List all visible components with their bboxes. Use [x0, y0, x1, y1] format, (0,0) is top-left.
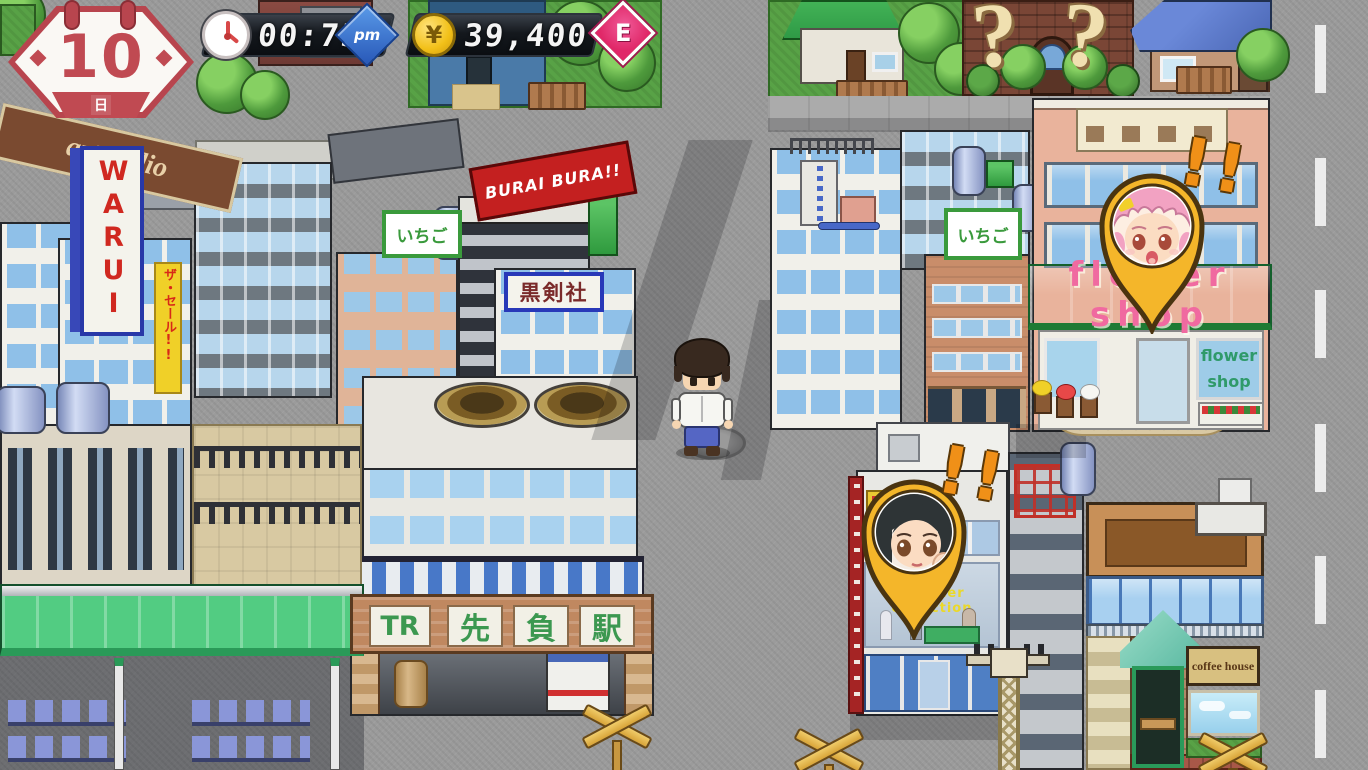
money-display: 39,400	[460, 18, 590, 54]
flower-bloom	[1032, 380, 1052, 396]
tower-bolt	[974, 644, 980, 654]
bench-row	[192, 700, 310, 726]
station-sign-kanji: 駅	[592, 604, 622, 648]
tower-bolt	[1038, 644, 1044, 654]
flower-window-text1: flower	[1199, 343, 1259, 369]
station-sign-tr: TR	[380, 611, 419, 642]
station-plaza	[192, 424, 362, 592]
station-sign-panel: 先	[447, 605, 503, 647]
station-pillar	[352, 654, 380, 714]
flower-bloom	[1080, 384, 1100, 400]
crossing-gate-tower	[966, 642, 1052, 770]
station-sign-kanji: 先	[460, 604, 490, 648]
canopy-post	[330, 658, 340, 770]
water-tank	[0, 386, 46, 434]
kiosk-top-stripe	[548, 654, 608, 662]
platform-canopy	[0, 584, 364, 656]
coffee-window-band	[1086, 576, 1264, 626]
warui-sign-text: WARUI	[98, 156, 129, 328]
player-shirt-button-line	[701, 396, 703, 422]
roof-box-pink	[840, 196, 876, 224]
sale-banner: ザ・セール!!	[154, 262, 182, 394]
lane-dash	[1315, 556, 1326, 624]
lane-dash	[1315, 158, 1326, 226]
ichigo-sign-left: いちご	[382, 210, 462, 258]
station-sign-panel: 駅	[579, 605, 635, 647]
player-arm	[671, 398, 681, 422]
calendar-day: 10	[8, 22, 194, 92]
player-eye	[690, 377, 697, 386]
coffee-roof	[1086, 502, 1264, 578]
window-strip	[932, 284, 1022, 304]
window-strip	[932, 318, 1022, 338]
penthouse-door	[888, 434, 920, 462]
railroad-crossing-sign	[1192, 724, 1274, 770]
ichigo-sign-right-text: いちご	[958, 222, 1009, 247]
platform-fence	[194, 446, 360, 468]
ichigo-sign-left-text: いちご	[397, 222, 448, 247]
rank-label: E	[615, 19, 631, 47]
station-building[interactable]: TR 先 負 駅	[350, 594, 654, 654]
flower-planter	[1198, 402, 1264, 426]
coffee-door[interactable]	[1132, 666, 1184, 768]
lane-dash	[1315, 290, 1326, 358]
coffee-counter	[1140, 718, 1176, 730]
rank-diamond: E	[590, 0, 655, 65]
warui-sign: WARUI	[80, 146, 144, 336]
meridiem-label: pm	[354, 26, 380, 44]
hud: 10 日 00:75 pm ¥ 39,400 E	[0, 0, 1368, 130]
burai-sign-text: BURAI BURA!!	[483, 160, 622, 203]
tower-head	[990, 648, 1028, 678]
player-shoe	[706, 446, 720, 456]
calendar-weekday-banner: 日	[52, 92, 150, 118]
clock-center	[224, 33, 231, 40]
railroad-crossing-sign	[576, 696, 658, 770]
railroad-crossing-sign	[788, 720, 870, 770]
window-strip	[932, 352, 1022, 372]
cloud	[1199, 701, 1225, 711]
coffee-house-sign-text: coffee house	[1192, 659, 1254, 674]
roof-railing	[790, 138, 874, 154]
cloud	[1229, 711, 1251, 719]
player-eye	[708, 377, 715, 386]
station-sign-panel: TR	[369, 605, 431, 647]
station-upper-floors	[362, 468, 638, 560]
shop-window-right: flower shop	[1196, 338, 1262, 400]
station-sign-panel: 負	[513, 605, 569, 647]
elevator-tower	[800, 160, 838, 226]
planter-blooms	[1202, 406, 1260, 414]
player-hand	[672, 420, 681, 429]
roof-pipe	[818, 222, 880, 230]
ichigo-sign-right: いちご	[944, 208, 1022, 260]
water-tank	[56, 382, 110, 434]
lane-dash	[1315, 424, 1326, 492]
alert-marker: !!	[1174, 122, 1257, 210]
coin-icon: ¥	[412, 13, 456, 57]
game-map-screen: ? ? artstudio WARUI ザ・セール!! いちご BURAI BU…	[0, 0, 1368, 770]
player-side-hair	[722, 366, 730, 382]
tower-mast	[998, 678, 1020, 770]
barrel	[394, 660, 428, 708]
calendar-badge: 10 日	[8, 0, 194, 118]
lane-dash	[1315, 690, 1326, 758]
utility-box	[986, 160, 1014, 188]
player-character	[666, 334, 738, 462]
coffee-house-sign: coffee house	[1186, 646, 1260, 686]
canopy-edge	[2, 586, 362, 596]
clock-icon	[202, 11, 250, 59]
elevator-stripe	[817, 166, 823, 222]
station-striped-awning	[356, 556, 644, 596]
coffee-roof-notch	[1195, 502, 1267, 536]
bench-row	[192, 736, 310, 762]
canopy-post	[114, 658, 124, 770]
kensha-sign: 黒剣社	[504, 272, 604, 312]
platform-fence	[194, 502, 360, 524]
alert-marker: !!	[932, 430, 1015, 518]
player-shoe	[684, 446, 698, 456]
dept-door[interactable]	[918, 660, 950, 710]
station-sign-kanji: 負	[526, 604, 556, 648]
beige-terminal-building	[0, 424, 192, 592]
player-arm	[723, 398, 733, 422]
terminal-window-columns	[8, 448, 184, 570]
flower-bloom	[1056, 384, 1076, 400]
round-tank	[434, 382, 530, 428]
player-side-hair	[674, 366, 682, 382]
salmon-brick-building	[924, 254, 1030, 432]
currency-symbol: ¥	[426, 21, 443, 49]
player-pants	[684, 426, 720, 448]
kensha-sign-text: 黒剣社	[520, 277, 589, 307]
water-tank	[952, 146, 986, 196]
player-hand	[724, 420, 733, 429]
warui-sign-side	[70, 148, 80, 332]
shop-door[interactable]	[1136, 338, 1190, 424]
bench-row	[8, 700, 126, 726]
sale-banner-text: ザ・セール!!	[159, 268, 178, 392]
calendar-weekday: 日	[91, 95, 111, 115]
flower-window-text2: shop	[1199, 369, 1259, 395]
bench-row	[8, 736, 126, 762]
